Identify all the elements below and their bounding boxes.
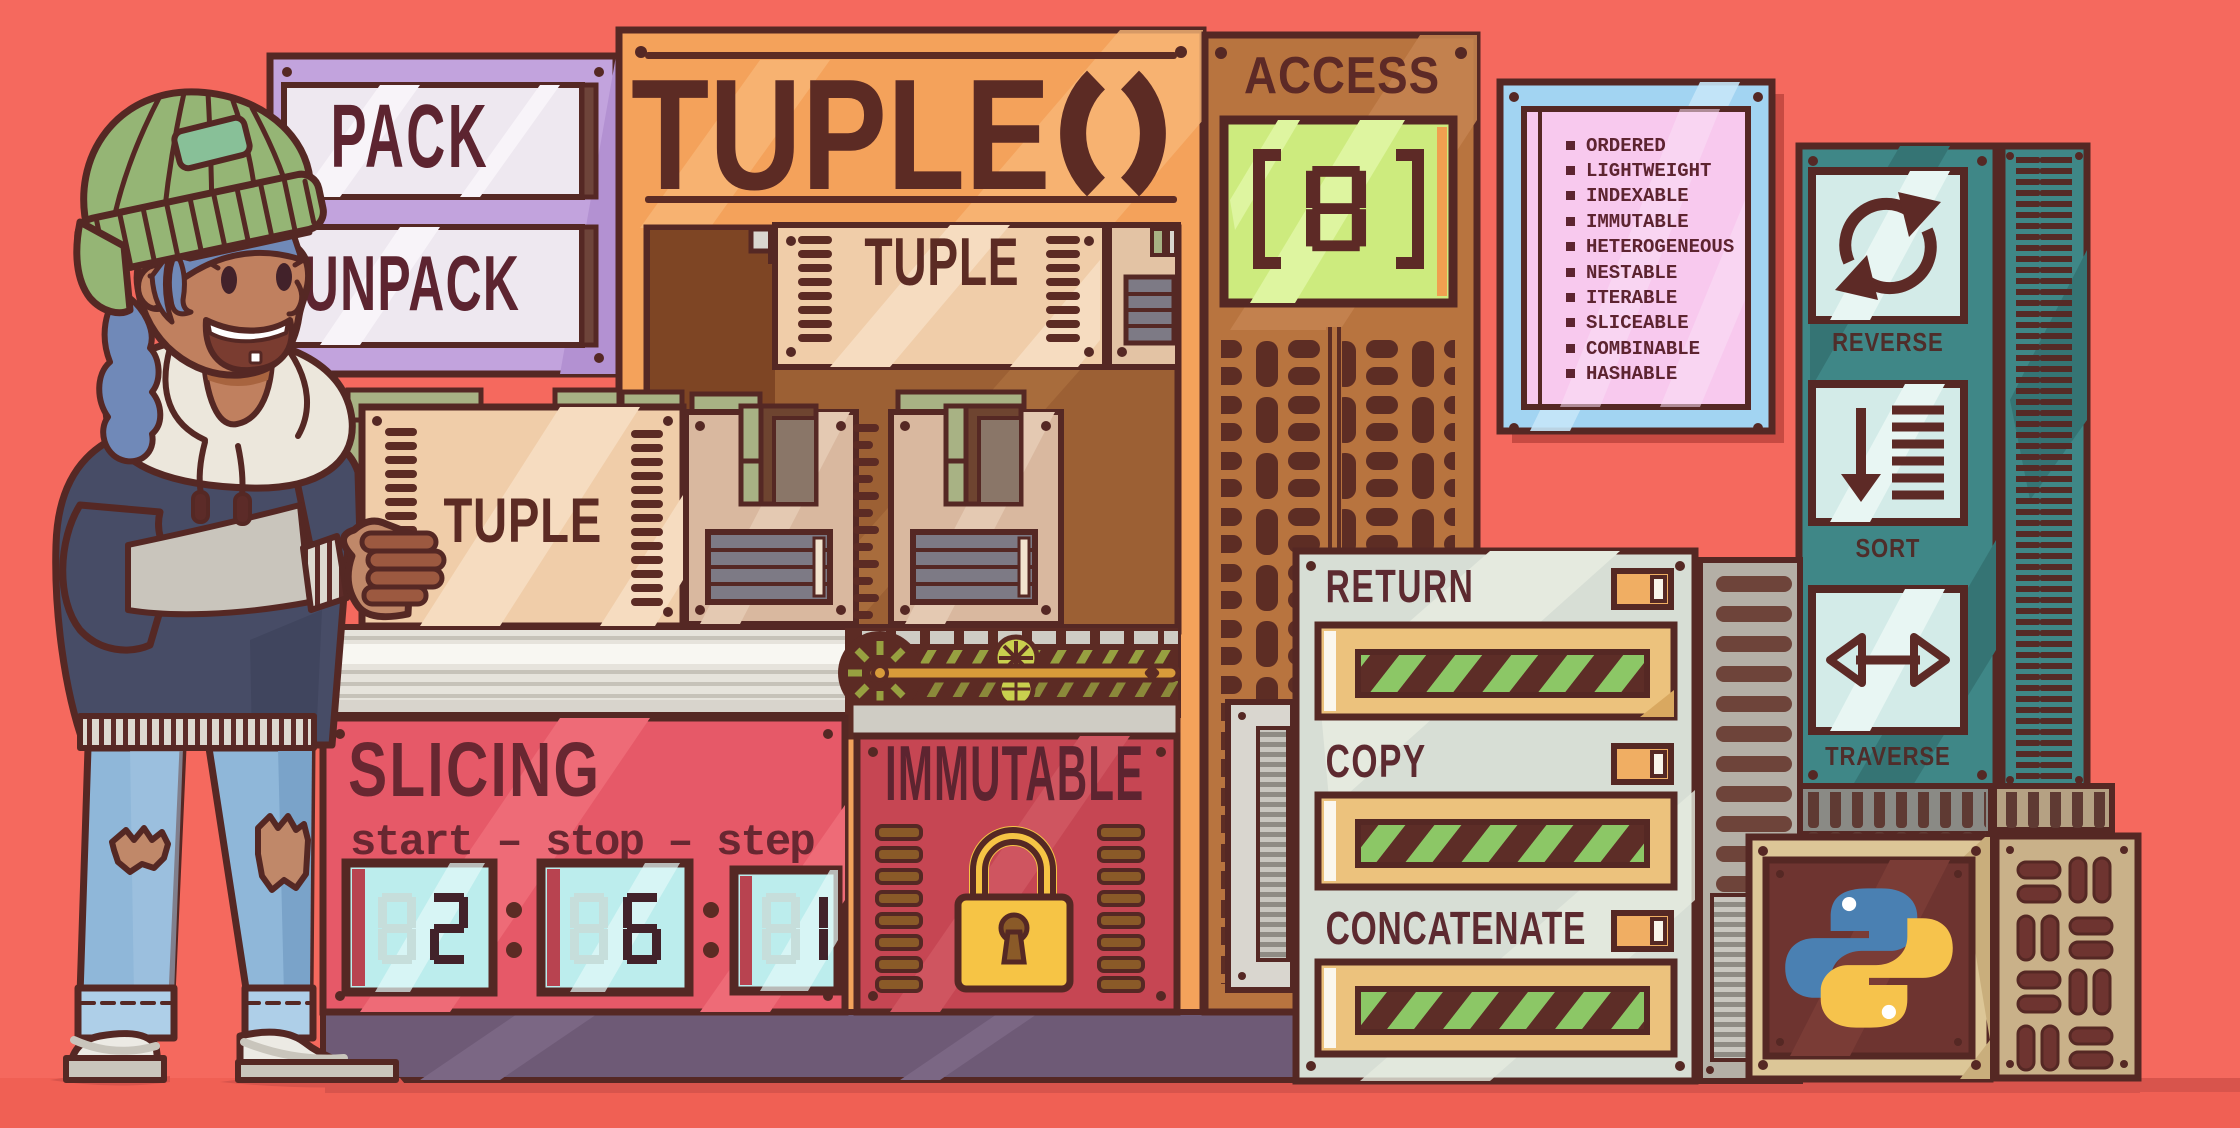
svg-text:HASHABLE: HASHABLE xyxy=(1586,363,1677,385)
svg-text:PACK: PACK xyxy=(331,86,490,187)
svg-text:TUPLE: TUPLE xyxy=(631,47,1050,223)
svg-text:SLICING: SLICING xyxy=(348,727,601,813)
svg-text:NESTABLE: NESTABLE xyxy=(1586,262,1677,284)
svg-text:COMBINABLE: COMBINABLE xyxy=(1586,338,1700,360)
svg-text:UNPACK: UNPACK xyxy=(303,240,520,327)
svg-text:HETEROGENEOUS: HETEROGENEOUS xyxy=(1586,236,1734,258)
svg-text:IMMUTABLE: IMMUTABLE xyxy=(1586,211,1689,233)
svg-text:TUPLE: TUPLE xyxy=(864,224,1019,300)
svg-text:REVERSE: REVERSE xyxy=(1832,328,1943,357)
svg-text:TUPLE: TUPLE xyxy=(443,485,602,555)
svg-text:ACCESS: ACCESS xyxy=(1244,47,1440,104)
svg-text:LIGHTWEIGHT: LIGHTWEIGHT xyxy=(1586,160,1711,182)
svg-text:TRAVERSE: TRAVERSE xyxy=(1825,742,1950,771)
svg-text:ITERABLE: ITERABLE xyxy=(1586,287,1677,309)
svg-text:COPY: COPY xyxy=(1326,736,1427,787)
svg-text:RETURN: RETURN xyxy=(1326,561,1475,612)
svg-text:IMMUTABLE: IMMUTABLE xyxy=(885,730,1144,817)
svg-text:INDEXABLE: INDEXABLE xyxy=(1586,185,1689,207)
svg-text:CONCATENATE: CONCATENATE xyxy=(1326,903,1586,954)
svg-text:ORDERED: ORDERED xyxy=(1586,135,1666,157)
svg-text:SLICEABLE: SLICEABLE xyxy=(1586,312,1689,334)
svg-text:SORT: SORT xyxy=(1855,534,1920,563)
